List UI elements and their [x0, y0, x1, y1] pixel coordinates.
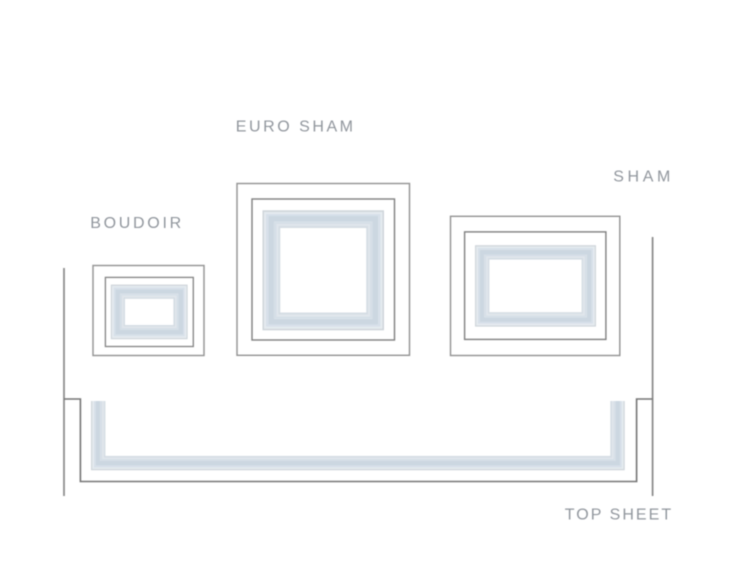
svg-text:SHAM: SHAM	[613, 169, 674, 186]
svg-text:EURO SHAM: EURO SHAM	[236, 118, 356, 135]
svg-text:TOP SHEET: TOP SHEET	[565, 507, 673, 524]
svg-text:BOUDOIR: BOUDOIR	[90, 215, 184, 232]
